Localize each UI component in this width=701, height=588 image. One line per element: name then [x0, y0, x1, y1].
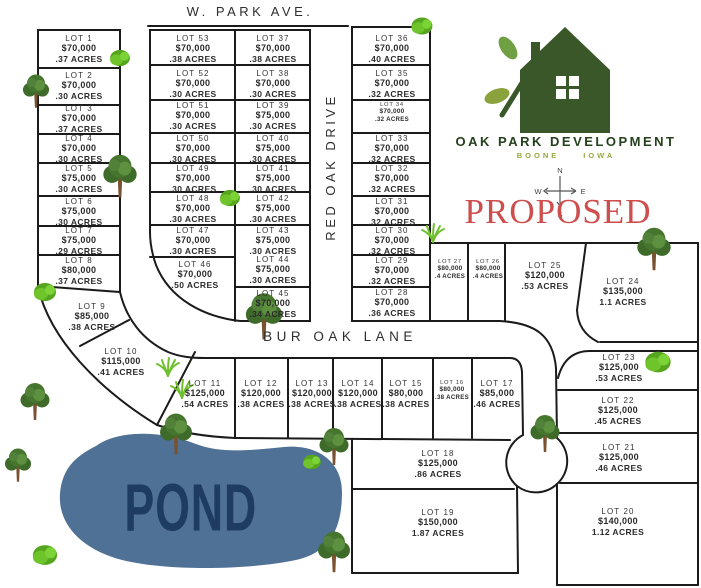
cul-de-sac	[517, 484, 557, 492]
lot-35: LOT 35$70,000.32 ACRES	[354, 69, 430, 99]
lot-46: LOT 46$70,000.50 ACRES	[152, 260, 238, 290]
lot-25: LOT 25$120,000.53 ACRES	[502, 261, 588, 291]
lot-53: LOT 53$70,000.38 ACRES	[152, 34, 234, 64]
lot-40: LOT 40$75,000.30 ACRES	[237, 134, 309, 164]
lot-7: LOT 7$75,000.29 ACRES	[38, 226, 120, 256]
lot-19: LOT 19$150,0001.87 ACRES	[388, 508, 488, 538]
street-label-w-park-ave: W. PARK AVE.	[150, 4, 350, 19]
lot-43: LOT 43$75,000.30 ACRES	[237, 226, 309, 256]
lot-2: LOT 2$70,000.30 ACRES	[38, 71, 120, 101]
compass-n: N	[557, 166, 562, 175]
lot-5: LOT 5$75,000.30 ACRES	[38, 164, 120, 194]
proposed-stamp: PROPOSED	[452, 192, 664, 232]
lot-44: LOT 44$75,000.30 ACRES	[237, 255, 309, 285]
lot-17: LOT 17$85,000.46 ACRES	[462, 379, 532, 409]
lot-41: LOT 41$75,000.30 ACRES	[237, 164, 309, 194]
lot-36: LOT 36$70,000.40 ACRES	[354, 34, 430, 64]
lot-10: LOT 10$115,000.41 ACRES	[78, 347, 164, 377]
lot-34: LOT 34$70,000.32 ACRES	[365, 101, 420, 123]
lot-24: LOT 24$135,0001.1 ACRES	[576, 277, 670, 307]
lot-3: LOT 3$70,000.37 ACRES	[38, 104, 120, 134]
logo-house-icon	[482, 27, 610, 133]
logo-city: BOONE	[517, 151, 560, 160]
lot-52: LOT 52$70,000.30 ACRES	[152, 69, 234, 99]
lot-51: LOT 51$70,000.30 ACRES	[152, 101, 234, 131]
street-label-bur-oak-lane: BUR OAK LANE	[240, 329, 440, 344]
lot-45: LOT 45$70,000.34 ACRES	[237, 289, 309, 319]
lot-18: LOT 18$125,000.86 ACRES	[390, 449, 486, 479]
street-label-red-oak-drive: RED OAK DRIVE	[323, 67, 339, 267]
lot-8: LOT 8$80,000.37 ACRES	[38, 256, 120, 286]
lot-1: LOT 1$70,000.37 ACRES	[38, 34, 120, 64]
lot-42: LOT 42$75,000.30 ACRES	[237, 194, 309, 224]
bush-icon	[303, 455, 321, 469]
lot-15: LOT 15$80,000.38 ACRES	[374, 379, 438, 409]
bush-icon	[412, 17, 433, 34]
tree-icon	[21, 383, 50, 420]
lot-31: LOT 31$70,000.32 ACRES	[354, 197, 430, 227]
logo-location: BOONEIOWA	[432, 151, 700, 160]
lot-37: LOT 37$70,000.38 ACRES	[237, 34, 309, 64]
logo-state: IOWA	[583, 151, 615, 160]
lot-23: LOT 23$125,000.53 ACRES	[572, 353, 666, 383]
plat-map: N E S W W. P	[0, 0, 701, 588]
tree-icon	[531, 415, 560, 452]
lot-27: LOT 27$80,000.4 ACRES	[434, 258, 466, 280]
road-edge-bur-oak-north	[500, 321, 567, 585]
lot-47: LOT 47$70,000.30 ACRES	[152, 226, 234, 256]
lot-4: LOT 4$70,000.30 ACRES	[38, 134, 120, 164]
bush-icon	[33, 545, 57, 565]
lot-30: LOT 30$70,000.32 ACRES	[354, 226, 430, 256]
lot-33: LOT 33$70,000.32 ACRES	[354, 134, 430, 164]
lot-28: LOT 28$70,000.36 ACRES	[354, 288, 430, 318]
lot-26: LOT 26$80,000.4 ACRES	[472, 258, 504, 280]
lot-29: LOT 29$70,000.32 ACRES	[354, 256, 430, 286]
lot-20: LOT 20$140,0001.12 ACRES	[568, 507, 668, 537]
lot-12: LOT 12$120,000.38 ACRES	[230, 379, 292, 409]
tree-icon	[637, 228, 670, 271]
lot-6: LOT 6$75,000.30 ACRES	[38, 197, 120, 227]
lot-9: LOT 9$85,000.38 ACRES	[50, 302, 134, 332]
lot-22: LOT 22$125,000.45 ACRES	[570, 396, 666, 426]
lot-39: LOT 39$75,000.30 ACRES	[237, 101, 309, 131]
logo-title: OAK PARK DEVELOPMENT	[432, 134, 700, 149]
tree-icon	[5, 449, 31, 482]
lot-21: LOT 21$125,000.46 ACRES	[572, 443, 666, 473]
lot-48: LOT 48$70,000.30 ACRES	[152, 194, 234, 224]
lot-49: LOT 49$70,000.30 ACRES	[152, 164, 234, 194]
pond-label: POND	[124, 468, 255, 546]
lot-32: LOT 32$70,000.32 ACRES	[354, 164, 430, 194]
lot-50: LOT 50$70,000.30 ACRES	[152, 134, 234, 164]
lot-38: LOT 38$70,000.30 ACRES	[237, 69, 309, 99]
